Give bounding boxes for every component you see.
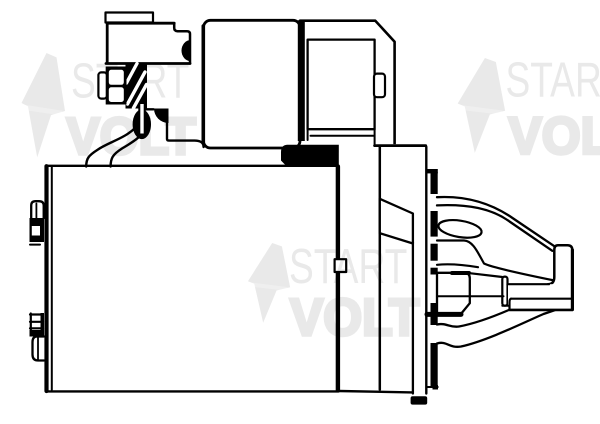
svg-text:START: START (289, 239, 407, 294)
svg-text:START: START (506, 52, 600, 107)
svg-text:VOLT: VOLT (67, 107, 196, 165)
svg-text:VOLT: VOLT (290, 288, 419, 346)
svg-text:VOLT: VOLT (509, 107, 600, 165)
